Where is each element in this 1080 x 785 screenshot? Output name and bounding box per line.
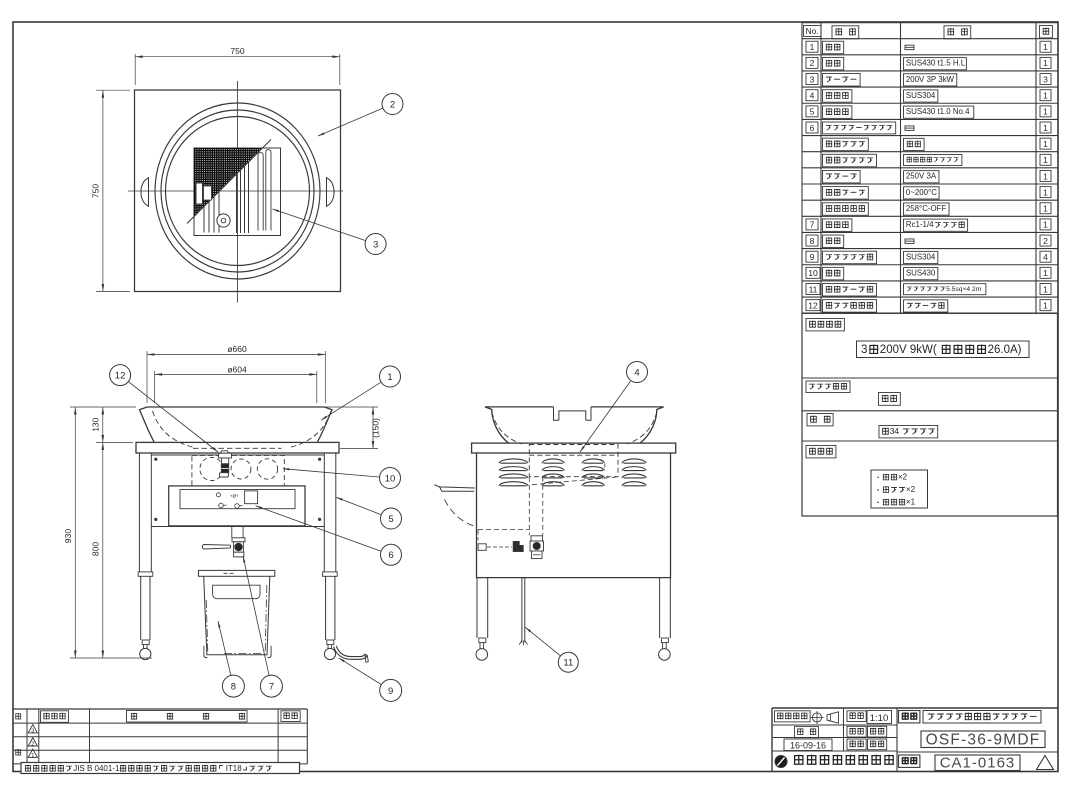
svg-text:3: 3 xyxy=(31,728,34,734)
svg-text:0~200°C: 0~200°C xyxy=(906,188,937,197)
svg-text:750: 750 xyxy=(91,184,101,198)
svg-text:6: 6 xyxy=(810,123,815,133)
svg-text:ø660: ø660 xyxy=(227,344,247,354)
svg-text:ø604: ø604 xyxy=(227,364,247,374)
svg-text:200V 3P 3kW: 200V 3P 3kW xyxy=(906,75,955,84)
svg-text:2: 2 xyxy=(1043,236,1048,246)
svg-text:OSF-36-9MDF: OSF-36-9MDF xyxy=(926,732,1041,749)
svg-text:1: 1 xyxy=(1043,123,1048,133)
svg-text:1: 1 xyxy=(387,372,392,383)
svg-text:SUS430: SUS430 xyxy=(906,269,936,278)
svg-text:1: 1 xyxy=(1043,107,1048,117)
svg-text:+Ø+: +Ø+ xyxy=(230,494,239,499)
svg-text:11: 11 xyxy=(563,658,573,669)
svg-text:1:10: 1:10 xyxy=(870,713,889,724)
svg-text:3: 3 xyxy=(861,344,867,356)
svg-text:SUS304: SUS304 xyxy=(906,253,936,262)
svg-text:7: 7 xyxy=(810,220,815,230)
svg-text:SUS430 t1.5 H.L: SUS430 t1.5 H.L xyxy=(906,59,966,68)
svg-text:4: 4 xyxy=(1043,252,1048,262)
svg-text:12: 12 xyxy=(115,371,126,382)
svg-text:1: 1 xyxy=(1043,42,1048,52)
svg-text:1: 1 xyxy=(1043,155,1048,165)
svg-text:1: 1 xyxy=(1043,220,1048,230)
svg-text:Rc1-1/4: Rc1-1/4 xyxy=(906,220,934,229)
svg-text:1: 1 xyxy=(1043,171,1048,181)
svg-text:16-09-16: 16-09-16 xyxy=(790,741,826,751)
svg-text:1: 1 xyxy=(1043,204,1048,214)
svg-text:4: 4 xyxy=(634,367,639,378)
svg-text:250V 3A: 250V 3A xyxy=(906,172,937,181)
svg-text:1: 1 xyxy=(1043,139,1048,149)
svg-text:130: 130 xyxy=(90,417,100,431)
svg-text:5.5sq×4 2m: 5.5sq×4 2m xyxy=(946,286,982,293)
svg-text:1: 1 xyxy=(1043,284,1048,294)
svg-text:1: 1 xyxy=(31,753,34,759)
svg-text:×2: ×2 xyxy=(898,473,908,482)
svg-text:5: 5 xyxy=(810,107,815,117)
svg-text:1: 1 xyxy=(810,42,815,52)
svg-text:SUS430 t1.0 No.4: SUS430 t1.0 No.4 xyxy=(906,107,970,116)
svg-text:2: 2 xyxy=(810,58,815,68)
svg-text:JIS B 0401-1: JIS B 0401-1 xyxy=(73,764,120,773)
svg-text:800: 800 xyxy=(90,542,100,556)
svg-text:750: 750 xyxy=(230,46,244,56)
svg-text:IT18: IT18 xyxy=(226,764,243,773)
svg-text:(150): (150) xyxy=(371,418,381,438)
svg-text:34: 34 xyxy=(890,426,900,436)
svg-text:6: 6 xyxy=(388,550,393,561)
svg-text:1: 1 xyxy=(1043,268,1048,278)
svg-text:4: 4 xyxy=(810,91,815,101)
svg-text:3: 3 xyxy=(373,239,378,250)
svg-text:200V 9kW(: 200V 9kW( xyxy=(880,344,937,356)
svg-text:9: 9 xyxy=(810,252,815,262)
svg-text:5: 5 xyxy=(388,514,393,525)
svg-text:7: 7 xyxy=(269,682,274,693)
svg-text:10: 10 xyxy=(385,473,396,484)
svg-text:12: 12 xyxy=(808,300,818,310)
svg-text:11: 11 xyxy=(809,284,818,294)
svg-text:8: 8 xyxy=(810,236,815,246)
svg-text:10: 10 xyxy=(808,268,818,278)
svg-text:2: 2 xyxy=(390,99,395,110)
svg-text:CA1-0163: CA1-0163 xyxy=(940,755,1016,772)
svg-text:258°C-OFF: 258°C-OFF xyxy=(906,204,947,213)
svg-text:×1: ×1 xyxy=(906,498,916,507)
svg-text:1: 1 xyxy=(1043,300,1048,310)
svg-text:8: 8 xyxy=(231,682,236,693)
svg-text:1: 1 xyxy=(1043,58,1048,68)
svg-text:1: 1 xyxy=(1043,187,1048,197)
svg-text:9: 9 xyxy=(388,686,393,697)
svg-text:2: 2 xyxy=(31,741,34,747)
svg-text:26.0A): 26.0A) xyxy=(988,344,1022,356)
svg-text:3: 3 xyxy=(1043,74,1048,84)
svg-text:×2: ×2 xyxy=(906,485,916,494)
svg-text:1: 1 xyxy=(1043,91,1048,101)
svg-text:930: 930 xyxy=(63,529,73,543)
svg-text:3: 3 xyxy=(810,74,815,84)
svg-text:No.: No. xyxy=(806,26,819,36)
svg-text:SUS304: SUS304 xyxy=(906,91,936,100)
